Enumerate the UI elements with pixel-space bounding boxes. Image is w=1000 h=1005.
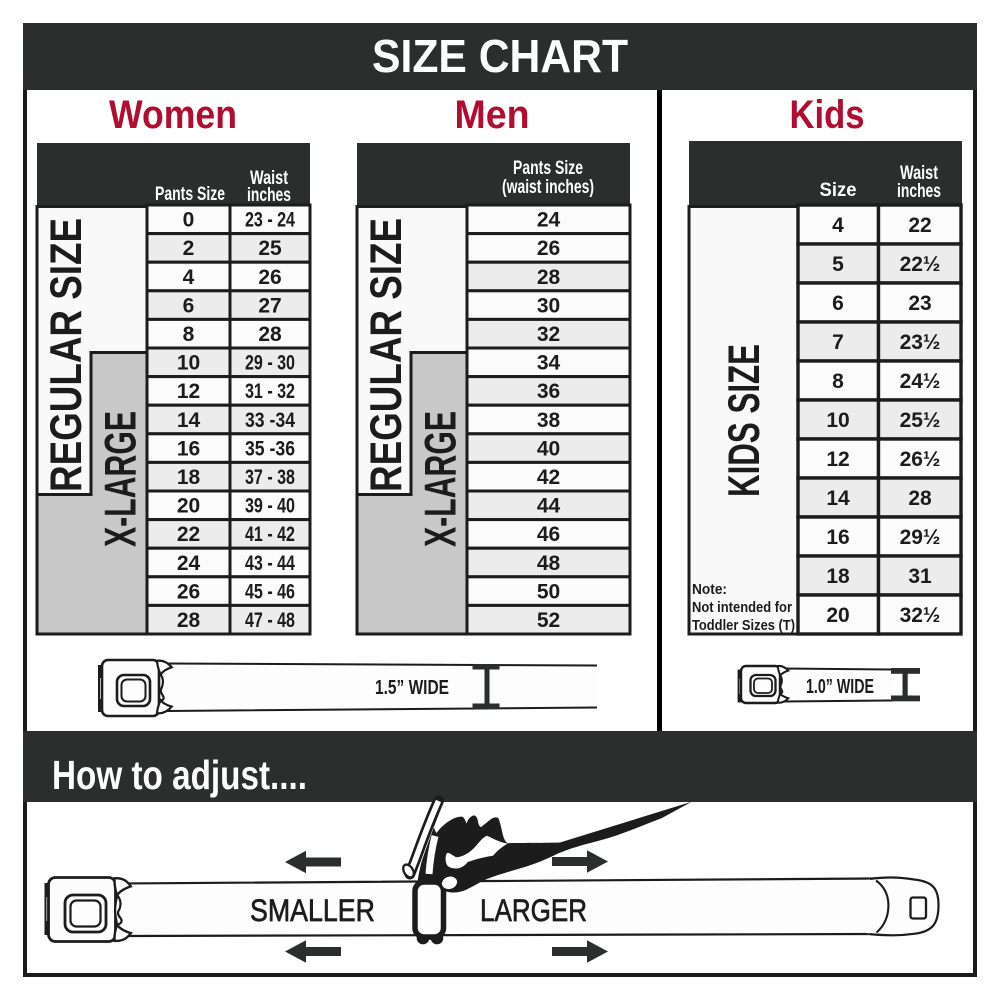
svg-text:38: 38 bbox=[537, 409, 561, 432]
svg-text:4: 4 bbox=[183, 266, 195, 289]
svg-text:Toddler Sizes (T): Toddler Sizes (T) bbox=[692, 618, 795, 634]
svg-text:14: 14 bbox=[177, 409, 201, 432]
svg-text:1.5” WIDE: 1.5” WIDE bbox=[375, 677, 449, 699]
svg-text:26: 26 bbox=[537, 237, 560, 260]
svg-text:SIZE CHART: SIZE CHART bbox=[372, 30, 628, 82]
svg-text:1.0” WIDE: 1.0” WIDE bbox=[806, 676, 874, 698]
svg-text:48: 48 bbox=[537, 552, 561, 575]
svg-text:Pants Size: Pants Size bbox=[513, 158, 583, 179]
svg-text:8: 8 bbox=[832, 370, 844, 393]
svg-text:27: 27 bbox=[258, 294, 281, 317]
svg-text:20: 20 bbox=[177, 495, 200, 518]
svg-text:46: 46 bbox=[537, 523, 560, 546]
svg-text:23: 23 bbox=[908, 292, 931, 315]
svg-text:37 - 38: 37 - 38 bbox=[245, 466, 295, 489]
svg-text:24: 24 bbox=[537, 209, 561, 232]
svg-text:Men: Men bbox=[455, 93, 530, 137]
svg-text:8: 8 bbox=[183, 323, 195, 346]
svg-text:22: 22 bbox=[177, 523, 200, 546]
svg-text:29½: 29½ bbox=[900, 526, 941, 549]
svg-text:X-LARGE: X-LARGE bbox=[416, 411, 466, 547]
svg-text:40: 40 bbox=[537, 437, 560, 460]
svg-text:41 - 42: 41 - 42 bbox=[245, 523, 295, 546]
svg-text:22½: 22½ bbox=[900, 253, 941, 276]
svg-text:Size: Size bbox=[820, 180, 857, 201]
svg-text:39 - 40: 39 - 40 bbox=[245, 495, 295, 518]
svg-text:6: 6 bbox=[832, 292, 844, 315]
svg-text:32: 32 bbox=[537, 323, 560, 346]
svg-text:29 - 30: 29 - 30 bbox=[245, 352, 295, 375]
svg-text:31: 31 bbox=[908, 565, 932, 588]
svg-text:23 - 24: 23 - 24 bbox=[245, 209, 295, 232]
svg-text:Not intended for: Not intended for bbox=[692, 600, 792, 616]
svg-text:16: 16 bbox=[826, 526, 849, 549]
svg-text:23½: 23½ bbox=[900, 331, 941, 354]
svg-text:20: 20 bbox=[826, 604, 849, 627]
svg-text:X-LARGE: X-LARGE bbox=[96, 411, 146, 547]
svg-text:26: 26 bbox=[258, 266, 281, 289]
svg-text:REGULAR SIZE: REGULAR SIZE bbox=[362, 218, 412, 492]
svg-text:35 -36: 35 -36 bbox=[245, 437, 295, 460]
svg-text:Women: Women bbox=[109, 93, 237, 137]
svg-text:28: 28 bbox=[537, 266, 561, 289]
svg-text:Pants Size: Pants Size bbox=[155, 184, 225, 205]
svg-text:28: 28 bbox=[177, 609, 201, 632]
svg-text:inches: inches bbox=[897, 181, 941, 202]
svg-text:24: 24 bbox=[177, 552, 201, 575]
svg-text:33 -34: 33 -34 bbox=[245, 409, 295, 432]
svg-text:45 - 46: 45 - 46 bbox=[245, 580, 295, 603]
svg-text:43 - 44: 43 - 44 bbox=[245, 552, 295, 575]
svg-text:18: 18 bbox=[826, 565, 850, 588]
svg-text:42: 42 bbox=[537, 466, 560, 489]
svg-text:30: 30 bbox=[537, 294, 560, 317]
svg-text:34: 34 bbox=[537, 352, 561, 375]
svg-text:Kids: Kids bbox=[790, 93, 865, 137]
svg-text:36: 36 bbox=[537, 380, 560, 403]
svg-text:26½: 26½ bbox=[900, 448, 941, 471]
svg-text:25½: 25½ bbox=[900, 409, 941, 432]
svg-text:26: 26 bbox=[177, 580, 200, 603]
svg-text:4: 4 bbox=[832, 214, 844, 237]
svg-text:SMALLER: SMALLER bbox=[250, 892, 375, 928]
svg-text:12: 12 bbox=[177, 380, 200, 403]
svg-text:REGULAR SIZE: REGULAR SIZE bbox=[42, 218, 92, 492]
svg-text:24½: 24½ bbox=[900, 370, 941, 393]
svg-text:(waist inches): (waist inches) bbox=[502, 177, 594, 198]
svg-text:Note:: Note: bbox=[692, 582, 727, 598]
svg-text:12: 12 bbox=[826, 448, 849, 471]
svg-text:18: 18 bbox=[177, 466, 201, 489]
svg-text:5: 5 bbox=[832, 253, 844, 276]
svg-text:47 - 48: 47 - 48 bbox=[245, 609, 295, 632]
svg-text:2: 2 bbox=[183, 237, 195, 260]
svg-text:44: 44 bbox=[537, 495, 561, 518]
svg-text:10: 10 bbox=[177, 352, 200, 375]
svg-text:KIDS SIZE: KIDS SIZE bbox=[720, 344, 770, 497]
svg-text:10: 10 bbox=[826, 409, 849, 432]
svg-text:6: 6 bbox=[183, 294, 195, 317]
svg-text:0: 0 bbox=[183, 209, 195, 232]
svg-text:50: 50 bbox=[537, 580, 560, 603]
svg-text:25: 25 bbox=[258, 237, 282, 260]
svg-text:7: 7 bbox=[832, 331, 844, 354]
svg-text:31 - 32: 31 - 32 bbox=[245, 380, 295, 403]
svg-text:14: 14 bbox=[826, 487, 850, 510]
svg-text:32½: 32½ bbox=[900, 604, 941, 627]
svg-text:How to adjust....: How to adjust.... bbox=[52, 752, 307, 798]
svg-text:22: 22 bbox=[908, 214, 931, 237]
svg-text:52: 52 bbox=[537, 609, 560, 632]
svg-text:28: 28 bbox=[258, 323, 282, 346]
svg-text:LARGER: LARGER bbox=[480, 892, 587, 928]
svg-text:28: 28 bbox=[908, 487, 932, 510]
svg-text:inches: inches bbox=[247, 185, 291, 206]
svg-text:16: 16 bbox=[177, 437, 200, 460]
